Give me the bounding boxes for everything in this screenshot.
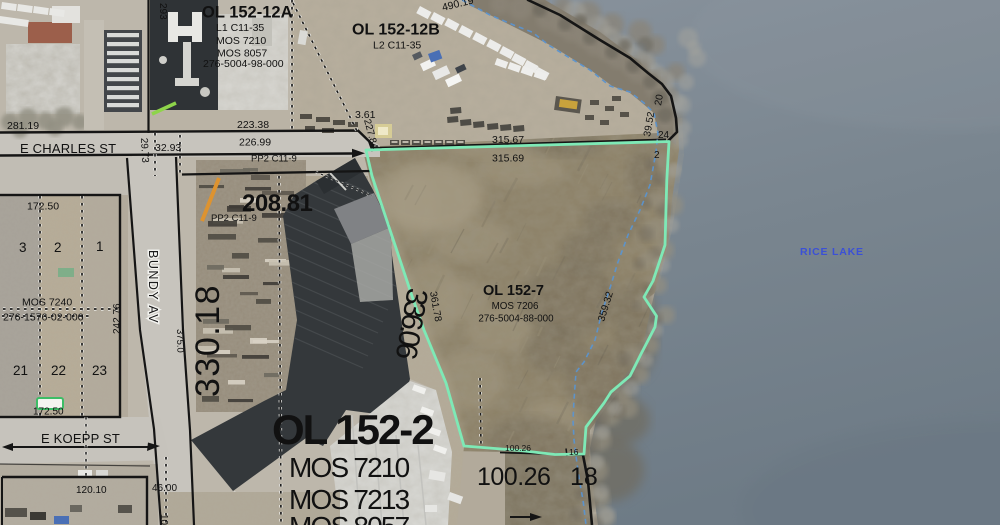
svg-text:23: 23 [92,363,107,378]
svg-text:293: 293 [157,3,168,20]
svg-text:2: 2 [54,240,62,255]
svg-text:24: 24 [658,130,670,141]
svg-text:E CHARLES ST: E CHARLES ST [20,141,116,156]
svg-text:32.93: 32.93 [155,142,181,154]
svg-text:MOS 7206: MOS 7206 [492,301,539,312]
svg-text:18: 18 [570,463,598,491]
svg-text:RICE LAKE: RICE LAKE [800,246,864,258]
svg-text:MOS 7210: MOS 7210 [216,35,266,47]
svg-text:276-5004-98-000: 276-5004-98-000 [203,58,284,70]
svg-text:21: 21 [13,363,28,378]
svg-text:276-5004-88-000: 276-5004-88-000 [478,314,554,325]
svg-text:100.26: 100.26 [505,443,531,453]
svg-text:16: 16 [569,447,579,457]
svg-text:172.50: 172.50 [33,407,64,418]
svg-text:281.19: 281.19 [7,120,39,132]
svg-text:3: 3 [19,240,27,255]
svg-text:L2 C11-35: L2 C11-35 [373,40,421,52]
svg-text:PP2 C11-9: PP2 C11-9 [251,154,297,165]
svg-text:MOS 7210: MOS 7210 [289,452,410,483]
svg-text:330.18: 330.18 [189,284,227,397]
svg-text:100.26: 100.26 [477,463,550,491]
svg-text:223.38: 223.38 [237,119,269,131]
svg-text:E KOEPP ST: E KOEPP ST [41,431,120,446]
svg-text:OL 152-2: OL 152-2 [272,406,433,453]
svg-text:1: 1 [96,239,104,254]
svg-text:315.67: 315.67 [492,134,524,146]
svg-text:MOS 7240: MOS 7240 [22,297,72,309]
svg-text:100: 100 [158,514,169,525]
svg-text:OL 152-12B: OL 152-12B [352,22,440,39]
svg-text:2: 2 [654,150,660,161]
svg-text:242.76: 242.76 [112,303,123,334]
svg-text:MOS 8057: MOS 8057 [289,511,410,525]
svg-text:172.50: 172.50 [27,201,59,213]
svg-text:276-1576-02-000: 276-1576-02-000 [3,312,84,324]
svg-text:29.73: 29.73 [138,138,150,164]
svg-text:120.10: 120.10 [76,485,107,496]
svg-text:375.0: 375.0 [174,329,185,353]
svg-text:OL 152-7: OL 152-7 [483,283,544,299]
svg-text:46.00: 46.00 [152,483,177,494]
svg-text:22: 22 [51,363,66,378]
svg-text:PP2 C11-9: PP2 C11-9 [211,213,257,224]
svg-text:315.69: 315.69 [492,153,524,165]
svg-text:OL 152-12A: OL 152-12A [202,4,293,22]
svg-text:226.99: 226.99 [239,137,271,149]
svg-text:BUNDY AV: BUNDY AV [146,250,160,324]
svg-text:L1 C11-35: L1 C11-35 [216,22,264,34]
